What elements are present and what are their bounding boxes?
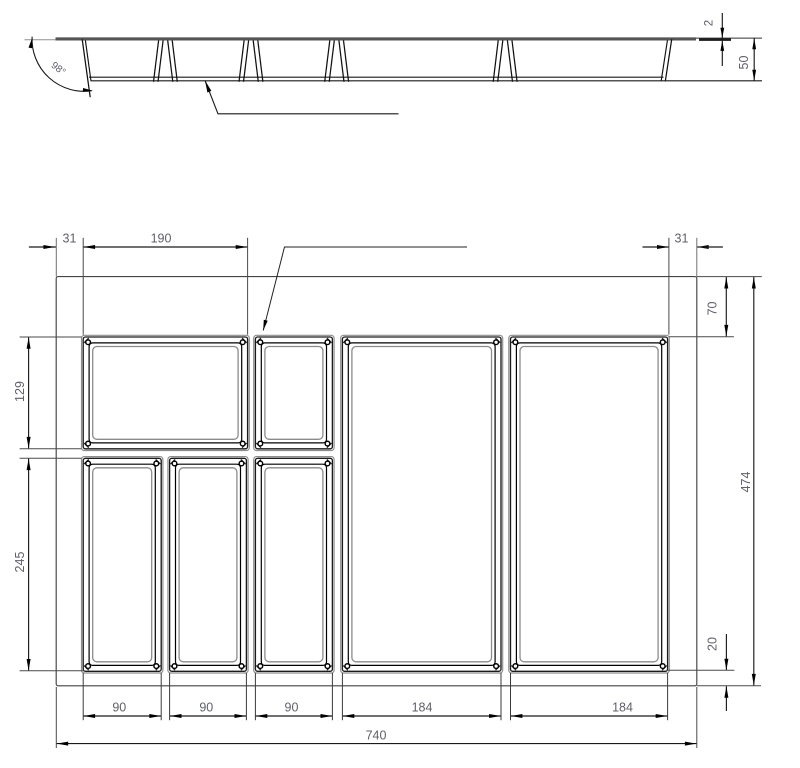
svg-text:20: 20 [706,637,720,651]
svg-text:90: 90 [199,701,213,715]
svg-text:50: 50 [737,56,751,70]
svg-text:245: 245 [13,552,27,573]
svg-text:98°: 98° [49,60,68,78]
svg-text:129: 129 [13,381,27,402]
svg-text:184: 184 [412,701,433,715]
svg-text:70: 70 [706,302,720,316]
svg-text:184: 184 [612,701,633,715]
svg-text:190: 190 [151,232,172,246]
svg-text:474: 474 [739,472,753,493]
svg-text:90: 90 [112,701,126,715]
svg-text:2: 2 [703,20,715,26]
svg-text:90: 90 [285,701,299,715]
svg-text:31: 31 [675,232,689,246]
svg-text:740: 740 [366,728,387,742]
svg-text:31: 31 [63,232,77,246]
